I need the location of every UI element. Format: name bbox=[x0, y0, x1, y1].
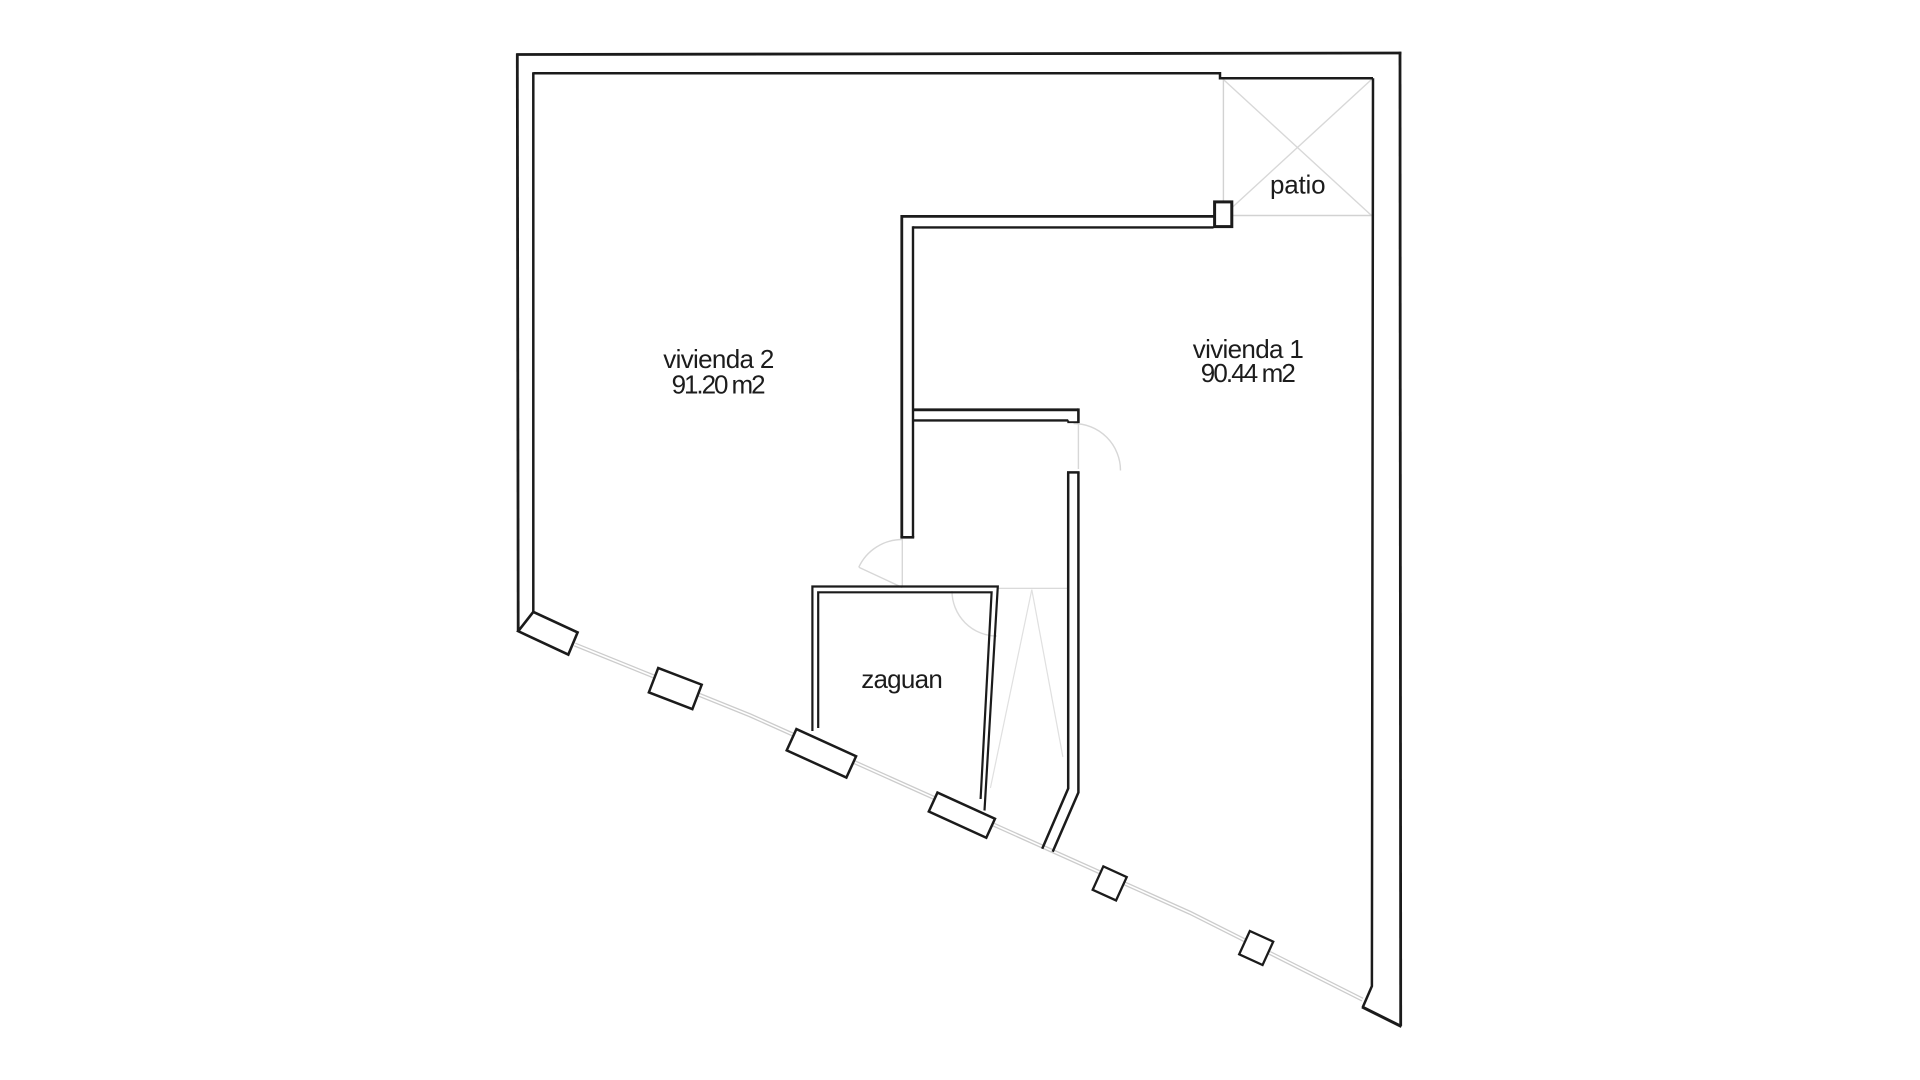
svg-text:90.44 m2: 90.44 m2 bbox=[1201, 358, 1296, 388]
svg-text:zaguan: zaguan bbox=[861, 664, 943, 694]
svg-text:patio: patio bbox=[1270, 170, 1326, 200]
svg-text:91.20 m2: 91.20 m2 bbox=[672, 369, 766, 399]
